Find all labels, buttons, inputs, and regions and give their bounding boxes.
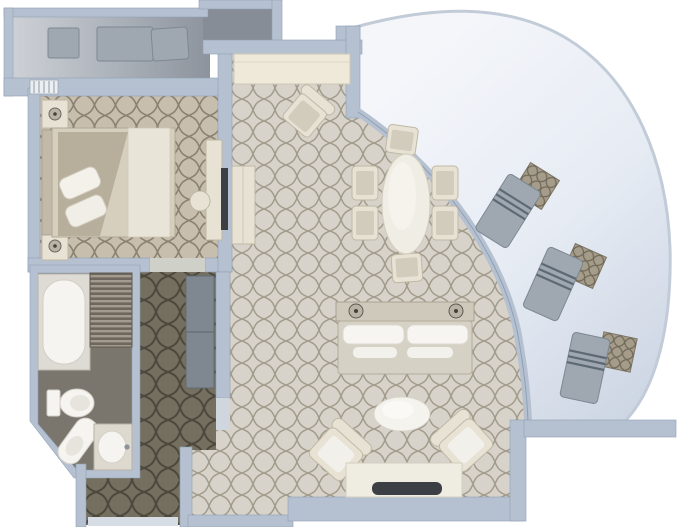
wall [28, 88, 40, 272]
writing-desk [234, 54, 350, 84]
sofa-back-cushion [343, 325, 404, 344]
vanity-desk [206, 140, 222, 240]
dining-table-highlight [388, 162, 416, 230]
toilet-tank [47, 390, 60, 416]
bedroom-door-opening [150, 258, 205, 272]
console-lamp-finial [354, 309, 358, 313]
wall-living-top [203, 40, 362, 54]
tv [372, 482, 442, 495]
dining-chair [385, 124, 419, 156]
wall [216, 272, 230, 398]
floor-plan-canvas [0, 0, 680, 527]
side-table [48, 28, 79, 58]
sofa-seat-pillow [407, 347, 453, 358]
toilet-seat [70, 395, 90, 411]
wall [199, 0, 281, 9]
dining-chair [352, 206, 378, 240]
wall-tv [221, 168, 228, 230]
coffee-table-highlight [382, 401, 414, 419]
sun-lounger-back [151, 27, 189, 61]
hallway-furniture [186, 276, 214, 388]
hallway-door-opening [216, 398, 230, 430]
media-unit [346, 463, 462, 497]
wall-deck-divider [524, 420, 676, 437]
wall [510, 420, 526, 521]
wall [4, 8, 208, 17]
double-bed [42, 128, 175, 237]
dining-chair [432, 206, 458, 240]
headboard [42, 130, 52, 235]
sink-basin [98, 431, 126, 463]
wall-living-bottom [288, 497, 524, 521]
entry-door-threshold [88, 517, 178, 526]
forward-veranda-furniture [48, 27, 189, 61]
vanity-stool [190, 191, 210, 211]
console-lamp-finial [454, 309, 458, 313]
toilet [47, 389, 94, 417]
table-lamp-finial [53, 244, 57, 248]
sink-faucet [124, 444, 129, 449]
dining-chair [432, 166, 458, 200]
sofa-back-cushion [407, 325, 468, 344]
wall [188, 515, 293, 527]
wall [272, 0, 282, 46]
louver-closet [90, 273, 132, 347]
dining-chair [391, 253, 423, 283]
suite-floor-plan [0, 0, 680, 527]
sun-lounger-flat [97, 27, 153, 61]
table-lamp-finial [53, 112, 57, 116]
dining-chair [352, 166, 378, 200]
duvet-fold [128, 128, 170, 237]
wall [76, 464, 86, 527]
sink-vanity [94, 424, 132, 470]
sofa-seat-pillow [353, 347, 397, 358]
bathtub [43, 280, 85, 364]
forward-veranda-deck-dark [203, 8, 273, 44]
